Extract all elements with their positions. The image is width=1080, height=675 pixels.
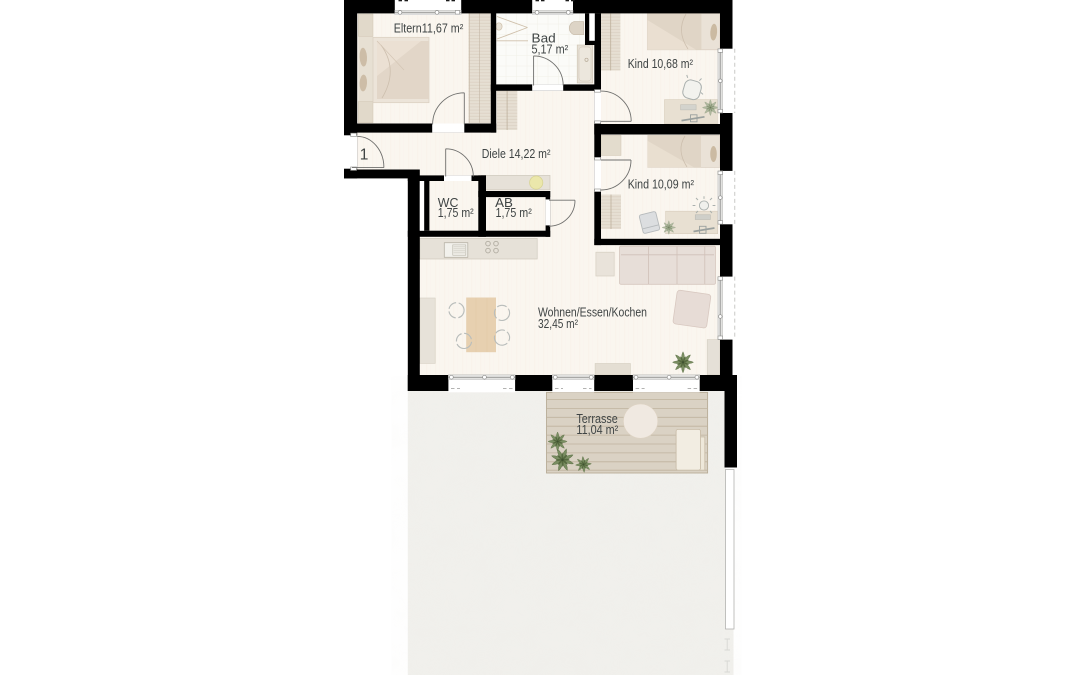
svg-text:11,04 m²: 11,04 m² [576, 422, 618, 437]
svg-text:1,75 m²: 1,75 m² [496, 205, 533, 220]
svg-text:32,45 m²: 32,45 m² [538, 316, 579, 331]
svg-text:5,17 m²: 5,17 m² [532, 42, 569, 57]
svg-text:Kind 10,09 m²: Kind 10,09 m² [628, 176, 695, 191]
svg-text:Kind 10,68 m²: Kind 10,68 m² [628, 56, 694, 71]
svg-text:Eltern11,67 m²: Eltern11,67 m² [394, 21, 464, 36]
svg-text:1,75 m²: 1,75 m² [438, 205, 474, 220]
svg-text:1: 1 [360, 147, 369, 164]
svg-text:Diele 14,22 m²: Diele 14,22 m² [482, 146, 551, 161]
